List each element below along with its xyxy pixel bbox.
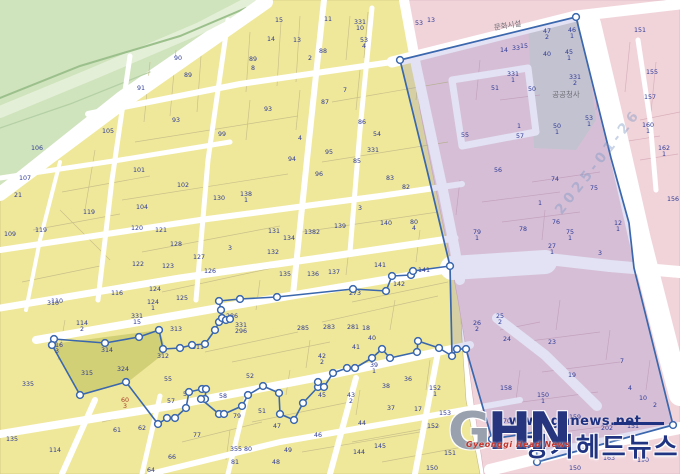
parcel-number-label: 151 [444, 450, 456, 457]
parcel-number-label: 79 [233, 413, 241, 420]
parcel-number-label: 155 [646, 69, 658, 76]
parcel-number-label: 142 [393, 281, 405, 288]
survey-node [277, 411, 284, 418]
parcel-number-label: 1 [517, 123, 521, 130]
survey-node [212, 327, 219, 334]
cadastral-map-photo: 9089898919310510699931514131133110534882… [0, 0, 680, 474]
parcel-number-label: 151 [627, 423, 639, 430]
parcel-number-label: 2 [653, 402, 657, 409]
parcel-number-label: 137 [328, 269, 340, 276]
parcel-number-label: 135 [279, 271, 291, 278]
survey-node [260, 383, 267, 390]
parcel-number-label: 53 [415, 20, 423, 27]
parcel-number-label: 80 [244, 446, 252, 453]
survey-node [410, 268, 417, 275]
survey-node [369, 355, 376, 362]
parcel-number-label: 50 [528, 86, 536, 93]
parcel-number-label: 24 [503, 336, 511, 343]
survey-node [387, 355, 394, 362]
parcel-number-label: 38 [382, 383, 390, 390]
survey-node [123, 379, 130, 386]
survey-node [164, 415, 171, 422]
survey-node [274, 294, 281, 301]
parcel-number-label: 106 [31, 145, 43, 152]
parcel-number-label: 93 [264, 106, 272, 113]
survey-node [245, 392, 252, 399]
parcel-number-label: 77 [193, 432, 201, 439]
parcel-number-label: 40 [543, 51, 551, 58]
survey-node [291, 417, 298, 424]
parcel-number-label: 82 [402, 184, 410, 191]
parcel-number-label: 131 [268, 228, 280, 235]
parcel-number-label: 335 [22, 381, 34, 388]
parcel-number-label: 89 [249, 56, 257, 63]
survey-node [198, 396, 205, 403]
survey-node [344, 365, 351, 372]
parcel-number-label: 314 [101, 347, 113, 354]
survey-node [389, 273, 396, 280]
parcel-number-label: 96 [315, 171, 323, 178]
parcel-number-label: 17 [414, 406, 422, 413]
parcel-number-label: 3 [598, 250, 602, 257]
parcel-number-label: 21 [14, 192, 22, 199]
survey-node [350, 286, 357, 293]
survey-node [203, 386, 210, 393]
parcel-number-label: 136 [307, 271, 319, 278]
survey-node [352, 365, 359, 372]
survey-node [49, 342, 56, 349]
survey-node [489, 436, 496, 443]
parcel-number-label: 11 [324, 16, 332, 23]
parcel-number-label: 51 [491, 85, 499, 92]
survey-node [216, 298, 223, 305]
parcel-number-label: 4 [298, 135, 302, 142]
parcel-number-label: 46 [314, 432, 322, 439]
parcel-number-label: 61 [113, 427, 121, 434]
parcel-number-label: 55 [461, 132, 469, 139]
parcel-number-label: 107 [19, 175, 31, 182]
survey-node [300, 400, 307, 407]
parcel-number-label: 355 [230, 446, 242, 453]
parcel-number-label: 57 [516, 133, 524, 140]
parcel-number-label: 57 [167, 398, 175, 405]
parcel-number-label: 87 [321, 99, 329, 106]
parcel-number-label: 13 [293, 37, 301, 44]
parcel-number-label: 36 [404, 376, 412, 383]
survey-node [172, 415, 179, 422]
parcel-number-label: 14 [267, 36, 275, 43]
parcel-number-label: 313 [170, 326, 182, 333]
parcel-number-label: 90 [174, 55, 182, 62]
survey-node [102, 340, 109, 347]
parcel-number-label: 152 [427, 423, 439, 430]
parcel-number-label: 51 [258, 408, 266, 415]
parcel-number-label: 95 [325, 149, 333, 156]
survey-node [454, 346, 461, 353]
parcel-number-label: 54 [373, 131, 381, 138]
parcel-number-label: 132 [267, 249, 279, 256]
parcel-number-label: 125 [176, 295, 188, 302]
survey-node [186, 389, 193, 396]
parcel-number-label: 140 [380, 220, 392, 227]
survey-node [227, 316, 234, 323]
parcel-number-label: 134 [283, 235, 295, 242]
parcel-number-label: 119 [35, 227, 47, 234]
parcel-number-label: 10 [639, 395, 647, 402]
parcel-number-label: 331296 [235, 322, 247, 335]
parcel-number-label: 85 [353, 158, 361, 165]
survey-node [379, 346, 386, 353]
parcel-number-label: 109 [4, 231, 16, 238]
parcel-number-label: 105 [102, 128, 114, 135]
parcel-number-label: 156 [667, 196, 679, 203]
parcel-number-label: 312 [157, 353, 169, 360]
parcel-number-label: 45 [318, 392, 326, 399]
parcel-number-label: 55 [164, 376, 172, 383]
parcel-number-label: 64 [147, 467, 155, 474]
survey-node [160, 346, 167, 353]
parcel-number-label: 141 [374, 262, 386, 269]
parcel-number-label: 2 [308, 55, 312, 62]
parcel-number-label: 104 [136, 204, 148, 211]
survey-node [573, 14, 580, 21]
parcel-number-label: 135 [6, 436, 18, 443]
survey-node [414, 349, 421, 356]
survey-node [183, 405, 190, 412]
parcel-number-label: 37 [387, 405, 395, 412]
parcel-number-label: 4 [628, 385, 632, 392]
parcel-number-label: 190 [637, 457, 649, 464]
parcel-number-label: 324 [117, 366, 129, 373]
parcel-number-label: 170 [499, 418, 511, 425]
facility-label: 공공청사 [552, 90, 580, 99]
parcel-number-label: 158 [500, 385, 512, 392]
parcel-number-label: 124 [149, 286, 161, 293]
survey-node [415, 338, 422, 345]
parcel-number-label: 8 [251, 65, 255, 72]
parcel-number-label: 283 [323, 324, 335, 331]
parcel-number-label: 86 [358, 119, 366, 126]
survey-node [533, 429, 540, 436]
parcel-number-label: 139 [334, 223, 346, 230]
parcel-number-label: 88 [319, 48, 327, 55]
parcel-number-label: 15 [275, 17, 283, 24]
parcel-number-label: 119 [83, 209, 95, 216]
parcel-number-label: 331 [367, 147, 379, 154]
survey-node [218, 307, 225, 314]
survey-node [383, 288, 390, 295]
survey-node [237, 296, 244, 303]
parcel-number-label: 23 [548, 339, 556, 346]
survey-node [189, 342, 196, 349]
parcel-number-label: 101 [133, 167, 145, 174]
parcel-number-label: 14 [500, 47, 508, 54]
parcel-number-label: 93 [172, 117, 180, 124]
parcel-number-label: 58 [219, 393, 227, 400]
survey-node [449, 353, 456, 360]
parcel-number-label: 102 [177, 182, 189, 189]
parcel-number-label: 127 [193, 254, 205, 261]
parcel-number-label: 49 [284, 447, 292, 454]
parcel-number-label: 75 [590, 185, 598, 192]
parcel-number-label: 150 [569, 465, 581, 472]
survey-node [670, 422, 677, 429]
parcel-number-label: 83 [386, 175, 394, 182]
parcel-number-label: 44 [358, 420, 366, 427]
survey-node [315, 379, 322, 386]
parcel-number-label: 123 [162, 263, 174, 270]
parcel-number-label: 18 [362, 325, 370, 332]
parcel-number-label: 52 [246, 373, 254, 380]
parcel-number-label: 150 [426, 465, 438, 472]
survey-node [534, 459, 541, 466]
parcel-number-label: 13 [427, 17, 435, 24]
survey-node [77, 392, 84, 399]
survey-node [397, 57, 404, 64]
parcel-number-label: 310 [47, 300, 59, 307]
survey-node [321, 384, 328, 391]
parcel-number-label: 144 [353, 449, 365, 456]
parcel-number-label: 121 [155, 227, 167, 234]
map-canvas: 9089898919310510699931514131133110534882… [0, 0, 680, 474]
parcel-number-label: 40 [368, 335, 376, 342]
parcel-number-label: 89 [184, 72, 192, 79]
survey-node [447, 263, 454, 270]
parcel-number-label: 99 [218, 131, 226, 138]
parcel-number-label: 1382 [304, 229, 320, 236]
survey-node [221, 411, 228, 418]
parcel-number-label: 281 [347, 324, 359, 331]
survey-node [136, 334, 143, 341]
survey-node [156, 327, 163, 334]
parcel-number-label: 3 [358, 205, 362, 212]
parcel-number-label: 7 [343, 87, 347, 94]
parcel-number-label: 76 [552, 219, 560, 226]
parcel-number-label: 47 [273, 423, 281, 430]
survey-node [276, 390, 283, 397]
parcel-number-label: 159 [569, 414, 581, 421]
parcel-number-label: 122 [132, 261, 144, 268]
parcel-number-label: 130 [213, 195, 225, 202]
parcel-number-label: 56 [494, 167, 502, 174]
parcel-number-label: 145 [374, 443, 386, 450]
parcel-number-label: 114 [49, 447, 61, 454]
parcel-number-label: 15 [520, 43, 528, 50]
parcel-number-label: 141 [418, 267, 430, 274]
parcel-number-label: 163 [603, 455, 615, 462]
parcel-number-label: 285 [297, 325, 309, 332]
parcel-number-label: 3 [228, 245, 232, 252]
parcel-number-label: 91 [137, 85, 145, 92]
parcel-number-label: 48 [272, 459, 280, 466]
survey-node [330, 370, 337, 377]
parcel-number-label: 33 [512, 45, 520, 52]
parcel-number-label: 153 [439, 410, 451, 417]
parcel-number-label: 74 [551, 176, 559, 183]
parcel-number-label: 128 [170, 241, 182, 248]
parcel-number-label: 66 [168, 454, 176, 461]
survey-node [463, 346, 470, 353]
parcel-number-label: 126 [204, 268, 216, 275]
survey-node [239, 403, 246, 410]
parcel-number-label: 7 [620, 358, 624, 365]
parcel-number-label: 116 [111, 290, 123, 297]
survey-node [155, 421, 162, 428]
parcel-number-label: 120 [131, 225, 143, 232]
survey-node [436, 345, 443, 352]
parcel-number-label: 151 [634, 27, 646, 34]
parcel-number-label: 1 [538, 200, 542, 207]
parcel-number-label: 157 [644, 94, 656, 101]
parcel-number-label: 41 [352, 344, 360, 351]
parcel-number-label: 62 [138, 425, 146, 432]
parcel-number-label: 78 [519, 226, 527, 233]
survey-node [202, 341, 209, 348]
parcel-number-label: 315 [81, 370, 93, 377]
parcel-number-label: 94 [288, 156, 296, 163]
parcel-number-label: 81 [231, 459, 239, 466]
parcel-number-label: 19 [568, 372, 576, 379]
survey-node [177, 345, 184, 352]
parcel-number-label: 202 [601, 425, 613, 432]
